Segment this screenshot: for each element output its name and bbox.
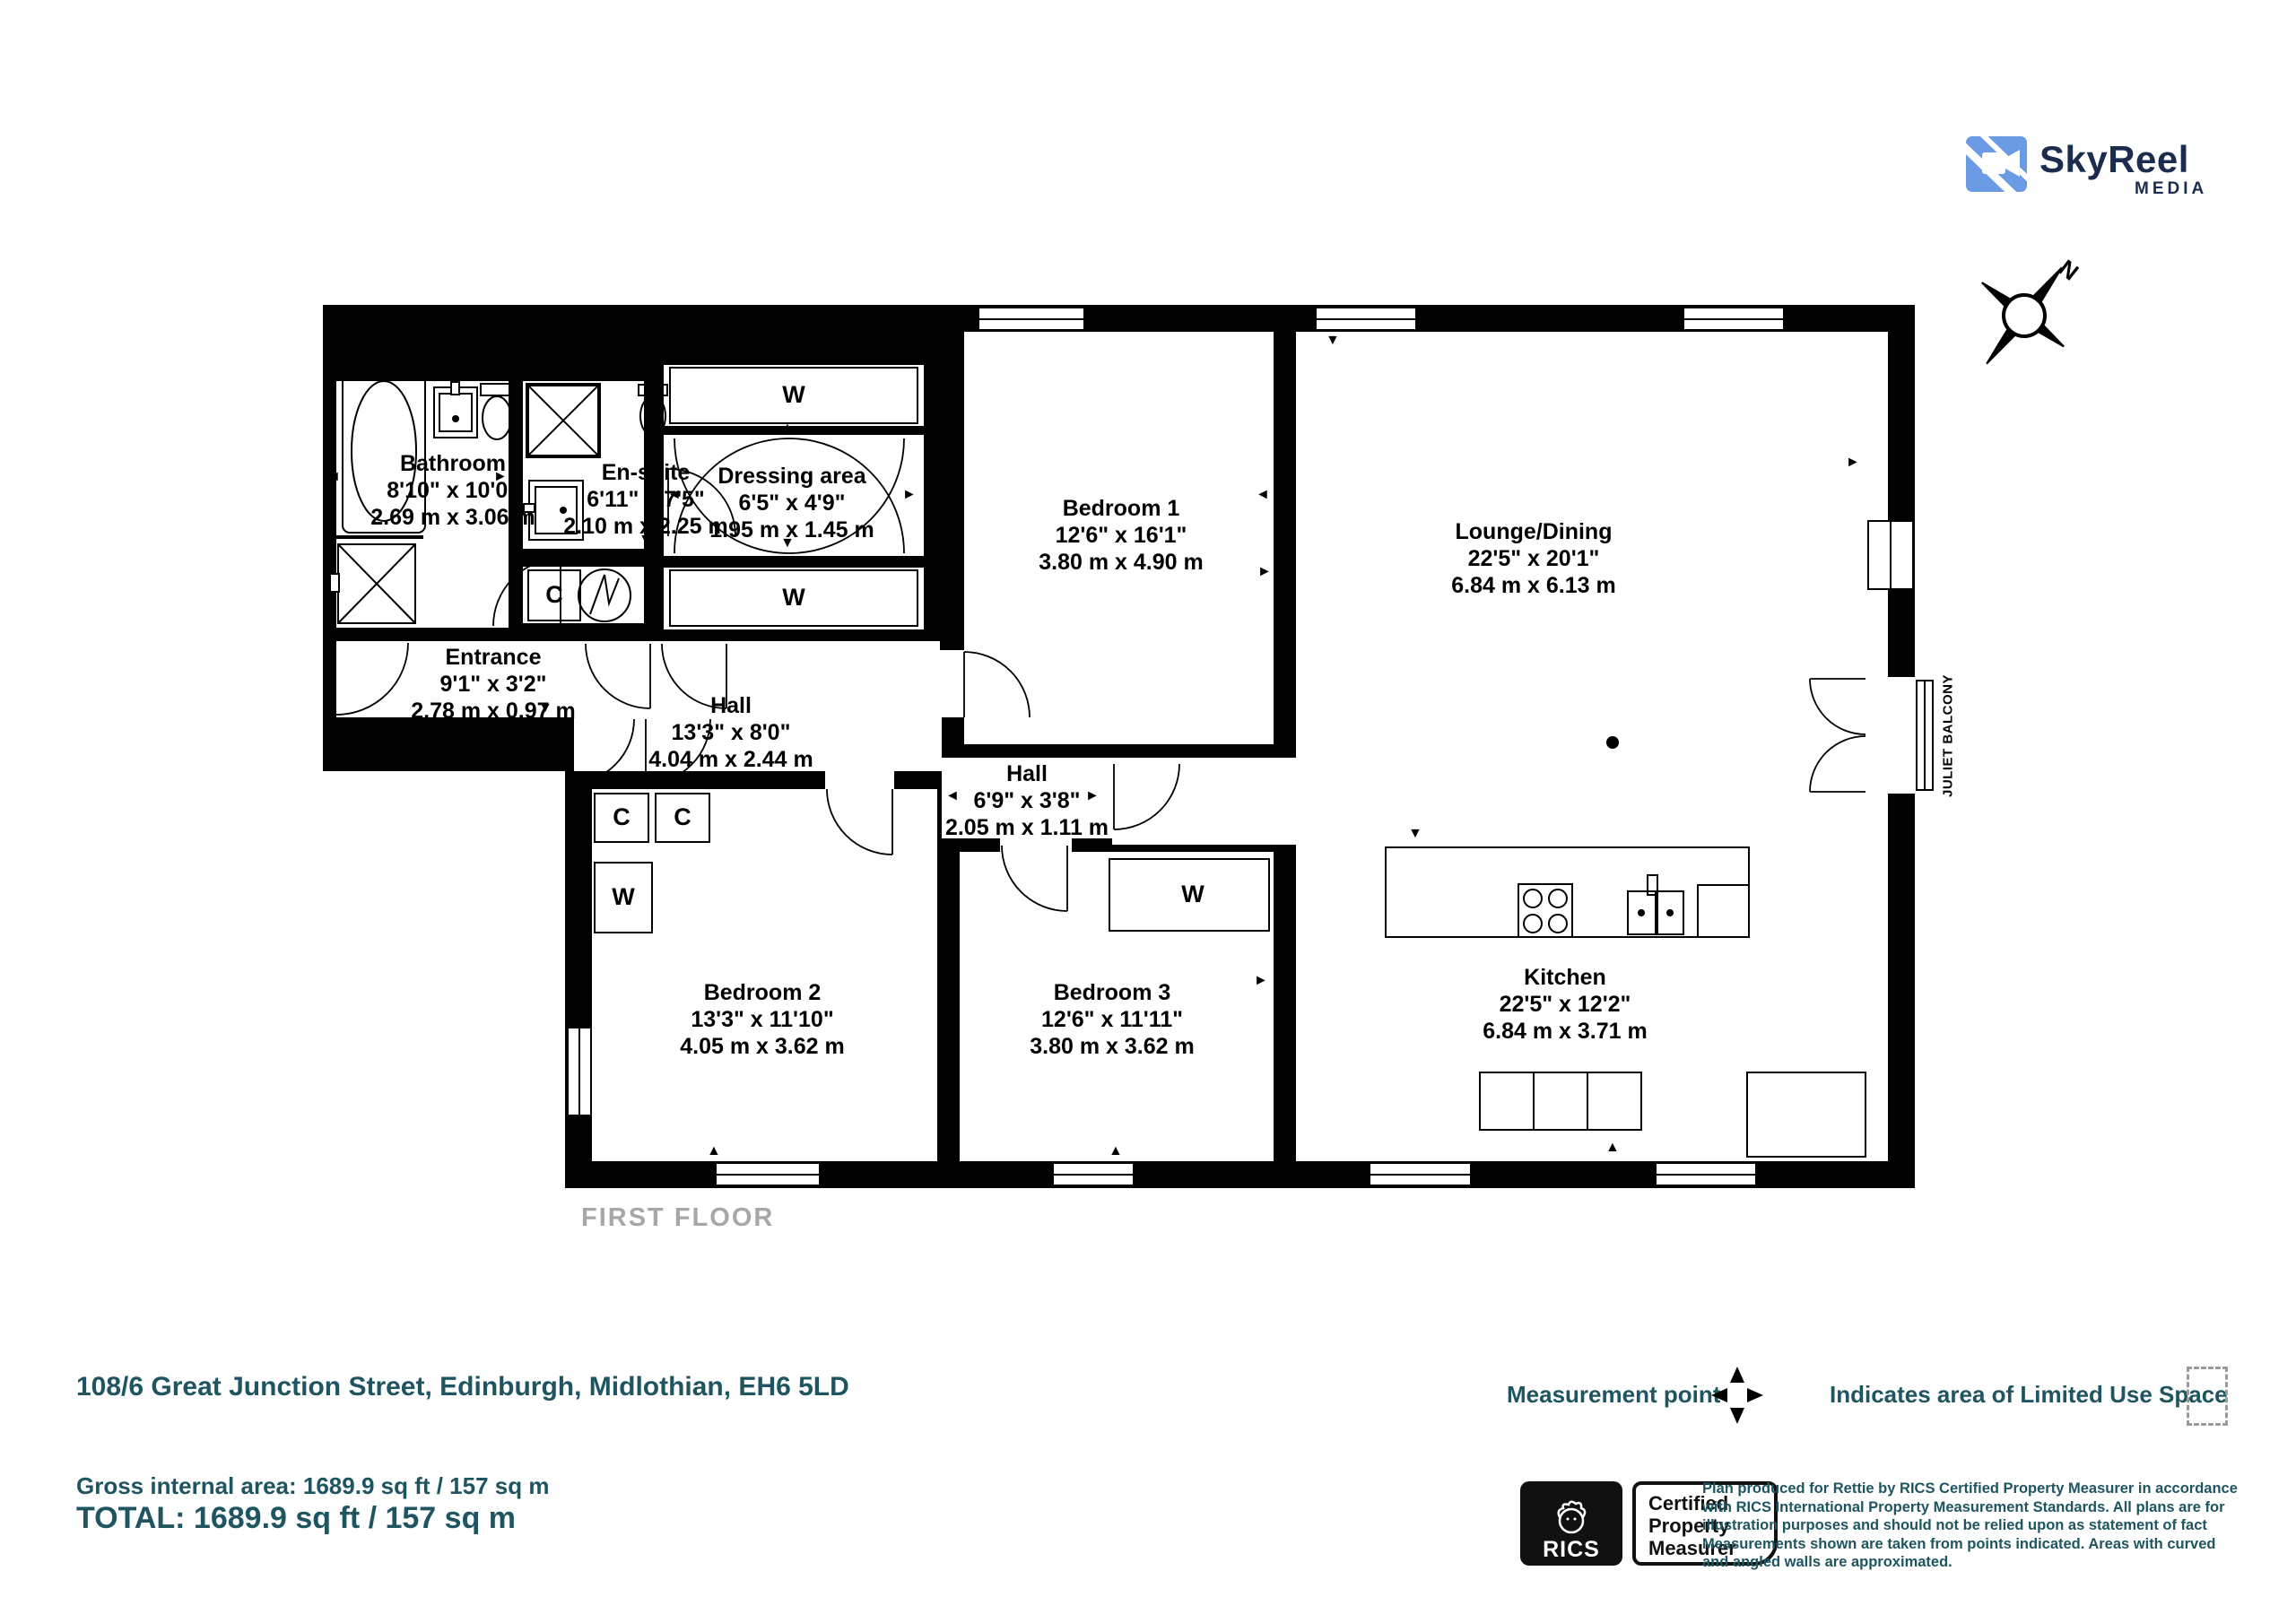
arrow-icon: ►	[902, 488, 917, 502]
room-label-kitchen: Kitchen 22'5" x 12'2" 6.84 m x 3.71 m	[1431, 964, 1700, 1045]
arrow-icon: ▲	[707, 1144, 721, 1159]
legend-limited-use-label: Indicates area of Limited Use Space	[1830, 1381, 2228, 1409]
arrow-icon: ▲	[1109, 1144, 1123, 1159]
measurement-point-icon	[1709, 1365, 1765, 1426]
room-label-bedroom2: Bedroom 2 13'3" x 11'10" 4.05 m x 3.62 m	[628, 979, 897, 1060]
compass-rose: N	[1960, 249, 2103, 384]
floorplan: Bathroom 8'10" x 10'0” 2.69 m x 3.06 m E…	[323, 305, 1955, 1193]
floor-title: FIRST FLOOR	[581, 1203, 774, 1233]
shower-icon-ensuite	[527, 385, 599, 456]
arrow-icon: ◄	[667, 488, 682, 502]
arrow-icon: ▼	[538, 701, 552, 716]
total-area: TOTAL: 1689.9 sq ft / 157 sq m	[76, 1501, 516, 1536]
disclaimer-text: Plan produced for Rettie by RICS Certifi…	[1702, 1480, 2240, 1572]
arrow-icon: ►	[1257, 565, 1272, 579]
arrow-icon: ▲	[780, 421, 795, 436]
gross-internal-area: Gross internal area: 1689.9 sq ft / 157 …	[76, 1472, 549, 1500]
property-address: 108/6 Great Junction Street, Edinburgh, …	[76, 1372, 849, 1402]
cupboard-label-2: C	[660, 803, 705, 831]
wardrobe-label-bottom: W	[771, 584, 816, 612]
legend-measurement-point-label: Measurement point	[1507, 1381, 1720, 1409]
room-label-bathroom: Bathroom 8'10" x 10'0” 2.69 m x 3.06 m	[345, 450, 561, 531]
room-label-hall-main: Hall 13'3" x 8'0" 4.04 m x 2.44 m	[619, 692, 843, 773]
cupboard-label-1: C	[599, 803, 644, 831]
boiler-icon	[578, 569, 631, 621]
rics-logo: RICS	[1520, 1481, 1622, 1566]
arrow-icon: ►	[1254, 974, 1268, 988]
toilet-icon-bathroom	[481, 384, 513, 439]
floorplan-page: SkyReel MEDIA N	[0, 0, 2296, 1623]
room-label-bedroom1: Bedroom 1 12'6" x 16'1" 3.80 m x 4.90 m	[987, 495, 1256, 576]
arrow-icon: ▲	[405, 364, 420, 378]
arrow-icon: ◄	[945, 789, 960, 803]
wardrobe-label-top: W	[771, 381, 816, 409]
arrow-icon: ▼	[1408, 827, 1422, 841]
arrow-icon: ►	[493, 470, 508, 484]
arrow-icon: ►	[1085, 789, 1100, 803]
arrow-icon: ◄	[1256, 488, 1270, 502]
logo-subtitle: MEDIA	[2135, 179, 2207, 199]
room-label-dressing: Dressing area 6'5" x 4'9" 1.95 m x 1.45 …	[671, 463, 913, 543]
skyreel-camera-icon	[1964, 135, 2031, 195]
arrow-icon: ►	[1846, 456, 1860, 470]
arrow-icon: ▲	[538, 628, 552, 642]
cupboard-label-ensuite: C	[532, 581, 577, 609]
room-label-lounge: Lounge/Dining 22'5" x 20'1" 6.84 m x 6.1…	[1399, 518, 1668, 599]
rics-brand-text: RICS	[1543, 1539, 1600, 1560]
room-label-bedroom3: Bedroom 3 12'6" x 11'11" 3.80 m x 3.62 m	[978, 979, 1247, 1060]
kitchen-island-icon	[1386, 847, 1749, 937]
arrow-icon: ◄	[936, 974, 951, 988]
kitchen-counter-icons	[1480, 1072, 1865, 1157]
rics-lion-icon	[1551, 1499, 1592, 1539]
shower-icon-bathroom	[330, 544, 415, 623]
arrow-icon: ◄	[326, 470, 341, 484]
arrow-icon: ▼	[780, 536, 795, 551]
arrow-icon: ▼	[1326, 334, 1340, 348]
toilet-icon-ensuite	[639, 385, 667, 436]
room-label-entrance: Entrance 9'1" x 3'2" 2.78 m x 0.97 m	[377, 644, 610, 725]
sink-icon-bathroom	[434, 382, 477, 438]
wardrobe-label-bedroom2: W	[601, 883, 646, 911]
limited-use-space-icon	[2187, 1367, 2228, 1426]
juliet-balcony-label: JULIET BALCONY	[1941, 647, 1956, 826]
skyreel-logo: SkyReel MEDIA	[1964, 135, 2215, 206]
arrow-icon: ▼	[639, 533, 653, 547]
wardrobe-label-bedroom3: W	[1166, 881, 1220, 908]
logo-name: SkyReel	[2039, 138, 2189, 181]
arrow-icon: ▲	[1605, 1141, 1620, 1155]
measurement-dot	[1606, 736, 1619, 749]
